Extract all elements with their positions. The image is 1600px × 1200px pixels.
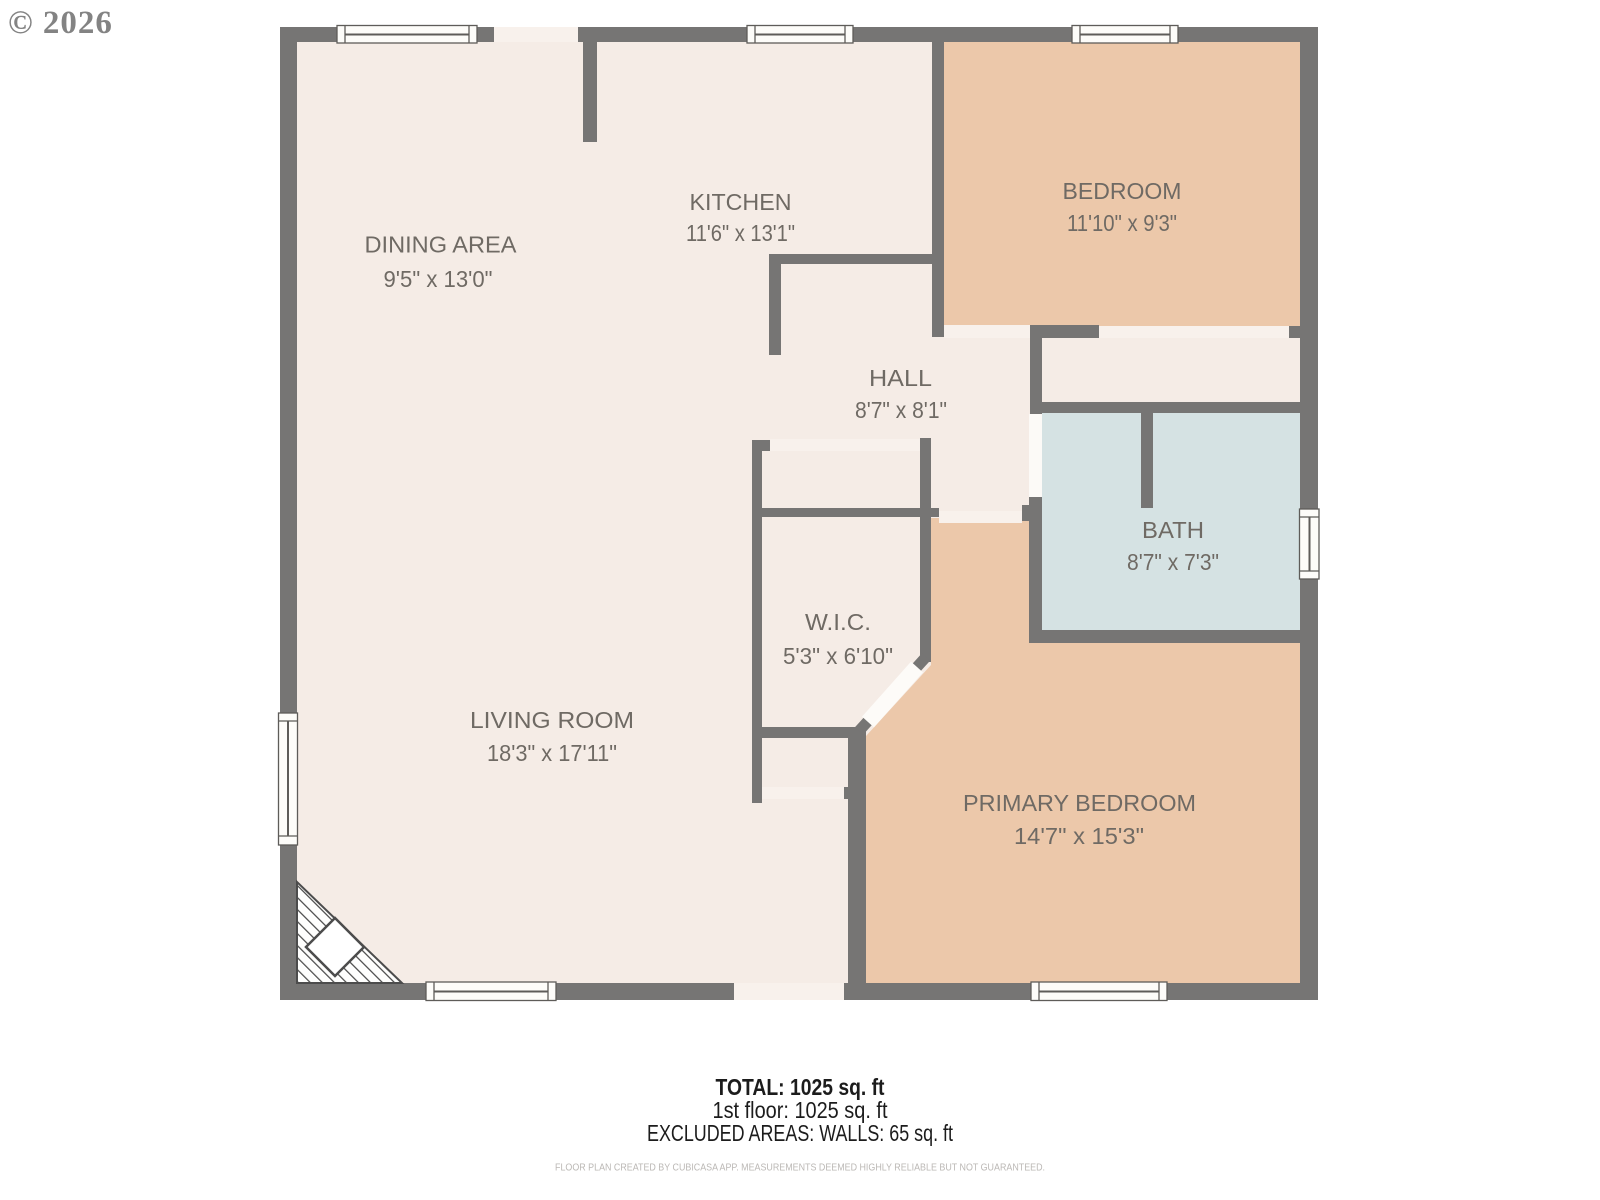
svg-text:9'5" x 13'0": 9'5" x 13'0": [384, 266, 493, 292]
svg-text:FLOOR PLAN CREATED BY CUBICASA: FLOOR PLAN CREATED BY CUBICASA APP. MEAS…: [555, 1162, 1045, 1174]
svg-text:11'10" x 9'3": 11'10" x 9'3": [1067, 210, 1177, 236]
svg-text:W.I.C.: W.I.C.: [805, 609, 871, 635]
svg-text:11'6" x 13'1": 11'6" x 13'1": [686, 220, 795, 246]
svg-text:8'7" x 7'3": 8'7" x 7'3": [1127, 549, 1219, 575]
svg-text:PRIMARY BEDROOM: PRIMARY BEDROOM: [963, 790, 1196, 816]
svg-text:EXCLUDED AREAS: WALLS: 65 sq.: EXCLUDED AREAS: WALLS: 65 sq. ft: [647, 1120, 953, 1146]
svg-text:HALL: HALL: [869, 365, 932, 391]
svg-text:DINING AREA: DINING AREA: [365, 232, 517, 258]
svg-text:KITCHEN: KITCHEN: [690, 189, 792, 215]
svg-text:5'3" x 6'10": 5'3" x 6'10": [783, 643, 893, 669]
svg-text:BATH: BATH: [1142, 517, 1204, 543]
svg-text:© 2026: © 2026: [8, 5, 113, 41]
svg-text:BEDROOM: BEDROOM: [1063, 178, 1182, 204]
svg-text:14'7" x 15'3": 14'7" x 15'3": [1014, 823, 1144, 849]
svg-text:18'3" x 17'11": 18'3" x 17'11": [487, 740, 617, 766]
svg-text:LIVING ROOM: LIVING ROOM: [470, 707, 634, 733]
svg-text:8'7" x 8'1": 8'7" x 8'1": [855, 397, 947, 423]
